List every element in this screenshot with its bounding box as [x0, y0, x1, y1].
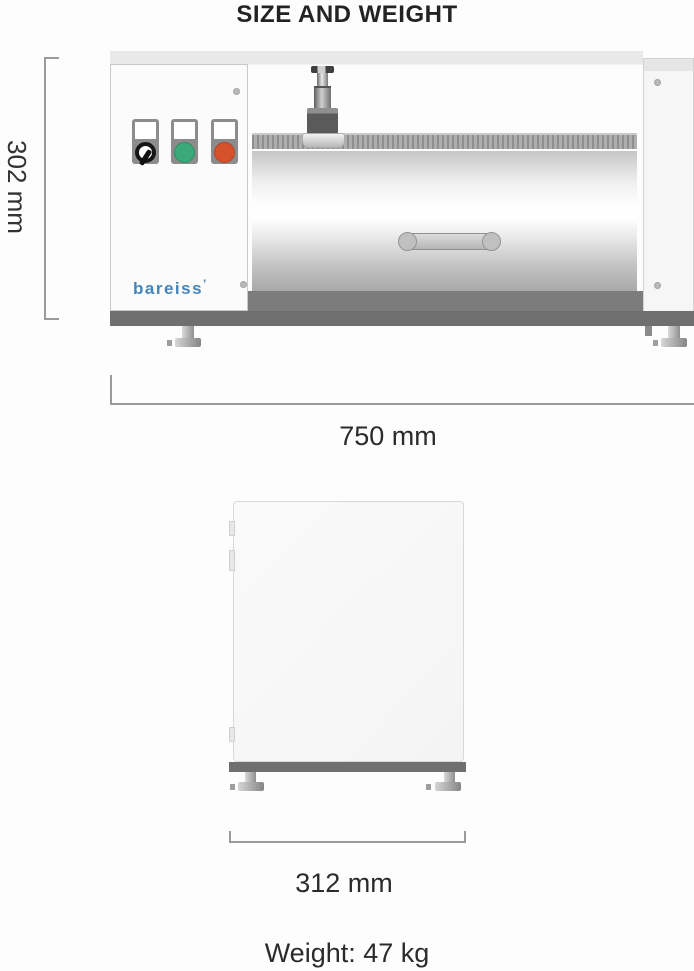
screw-icon	[240, 281, 247, 288]
handle-end-cap	[398, 232, 417, 251]
key-switch-label-plate	[135, 122, 156, 139]
machine-foot	[668, 326, 680, 338]
spindle-block	[307, 108, 338, 134]
side-housing	[233, 501, 464, 762]
height-dimension-line	[44, 57, 59, 320]
size-weight-diagram: SIZE AND WEIGHT 302 mm bareiss’	[0, 0, 694, 971]
side-base	[229, 762, 466, 772]
handle-end-cap	[482, 232, 501, 251]
hinge-icon	[229, 521, 235, 536]
machine-foot	[238, 782, 264, 791]
machine-foot	[645, 326, 652, 336]
spindle-cylinder	[314, 86, 331, 109]
red-button-unit	[211, 119, 238, 164]
red-button-label-plate	[214, 122, 235, 139]
screw-icon	[233, 88, 240, 95]
machine-foot	[435, 782, 461, 791]
start-button-icon	[174, 142, 195, 163]
right-panel-cap	[644, 59, 693, 71]
machine-foot	[426, 784, 431, 790]
machine-drum	[252, 151, 637, 291]
machine-foot	[245, 772, 256, 782]
brand-logo: bareiss’	[133, 277, 243, 299]
machine-front-view: bareiss’	[110, 51, 694, 351]
width-dimension-label: 750 mm	[288, 421, 488, 452]
machine-foot	[175, 338, 201, 347]
machine-side-view	[233, 501, 466, 801]
spindle-base	[302, 133, 345, 148]
machine-foot	[444, 772, 455, 782]
weight-text: Weight: 47 kg	[147, 938, 547, 969]
green-button-unit	[171, 119, 198, 164]
depth-dimension-label: 312 mm	[244, 868, 444, 899]
key-switch-unit	[132, 119, 159, 164]
control-panel: bareiss’	[110, 64, 248, 311]
page-title: SIZE AND WEIGHT	[0, 1, 694, 29]
machine-foot	[653, 340, 658, 346]
width-dimension-line	[110, 375, 694, 405]
machine-foot	[230, 784, 235, 790]
machine-foot	[661, 338, 687, 347]
drum-lower-band	[248, 291, 643, 311]
drum-handle	[402, 233, 497, 250]
screw-icon	[654, 282, 661, 289]
stop-button-icon	[214, 142, 235, 163]
height-dimension-label: 302 mm	[0, 132, 32, 242]
green-button-label-plate	[174, 122, 195, 139]
brand-trademark: ’	[203, 277, 206, 291]
machine-foot	[182, 326, 194, 338]
machine-top-lid	[110, 51, 643, 65]
screw-icon	[654, 79, 661, 86]
hinge-icon	[229, 727, 235, 742]
hinge-icon	[229, 550, 235, 571]
machine-foot	[167, 340, 172, 346]
spindle-knob	[311, 66, 334, 73]
machine-base	[110, 311, 694, 326]
spindle-stem	[317, 73, 328, 86]
depth-dimension-line	[229, 831, 466, 843]
right-end-panel	[643, 58, 694, 325]
